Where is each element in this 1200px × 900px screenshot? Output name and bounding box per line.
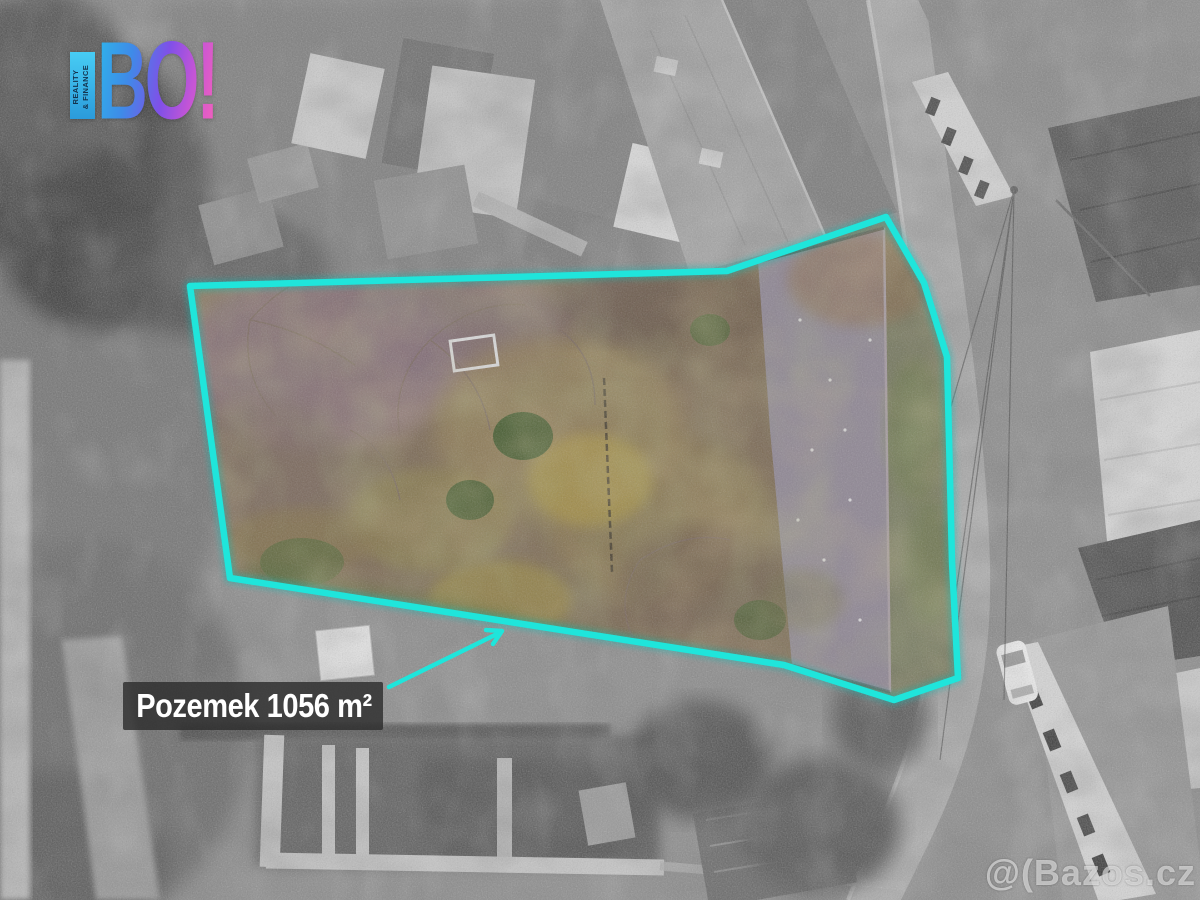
- area-label: Pozemek 1056 m²: [123, 682, 383, 730]
- watermark: @(Bazos.cz: [985, 852, 1196, 894]
- agency-logo: REALITY & FINANCE BO!: [70, 44, 243, 119]
- area-label-text: Pozemek 1056 m²: [123, 687, 372, 725]
- logo-tagline-line2: & FINANCE: [81, 53, 91, 120]
- logo-tagline: REALITY & FINANCE: [71, 53, 91, 120]
- logo-tagline-bar: REALITY & FINANCE: [70, 52, 95, 119]
- logo-wordmark: BO!: [97, 30, 216, 135]
- listing-photo: REALITY & FINANCE BO! Pozemek 1056 m² @(…: [0, 0, 1200, 900]
- logo-tagline-line1: REALITY: [71, 53, 81, 120]
